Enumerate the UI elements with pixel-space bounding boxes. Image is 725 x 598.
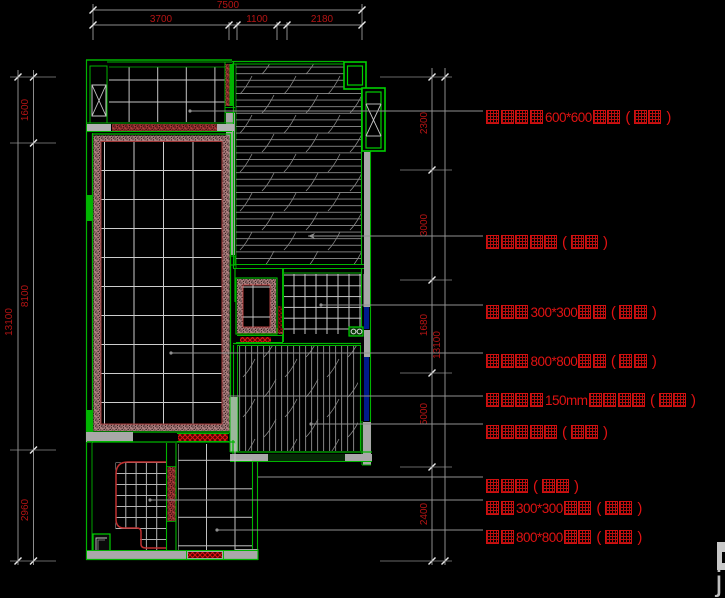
svg-text:j: j [715,565,723,598]
svg-text:7500: 7500 [217,0,240,11]
svg-text:1100: 1100 [246,14,268,25]
svg-text:1680: 1680 [419,313,430,336]
svg-text:2960: 2960 [20,498,31,521]
svg-text:3700: 3700 [150,14,173,25]
svg-text:5000: 5000 [419,402,430,425]
svg-text:3000: 3000 [419,213,430,236]
svg-text:13100: 13100 [432,331,443,359]
svg-text:13100: 13100 [4,308,15,336]
svg-text:8100: 8100 [20,284,31,307]
svg-text:2180: 2180 [311,14,334,25]
svg-text:1600: 1600 [20,98,31,121]
svg-text:2300: 2300 [419,111,430,134]
svg-text:2400: 2400 [419,502,430,525]
